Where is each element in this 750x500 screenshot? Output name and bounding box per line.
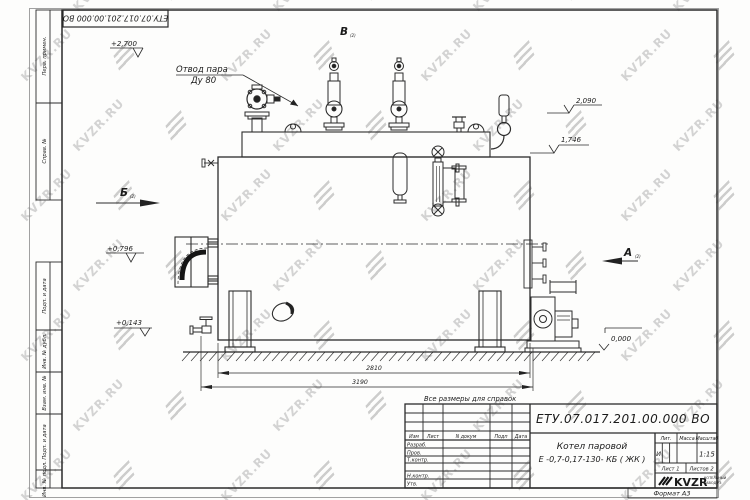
elevation-1746-text: 1,746 <box>561 136 582 144</box>
elevation-0143: +0,143 <box>114 319 152 336</box>
callout-line2: Ду 80 <box>190 76 216 86</box>
manhole <box>269 300 296 325</box>
view-a-sub: (2) <box>635 254 641 259</box>
dim-3190-text: 3190 <box>352 379 368 386</box>
product-name: Котел паровой <box>557 442 628 452</box>
view-b-sub: (2) <box>130 194 136 199</box>
boiler-drawing-svg: Перв. примен. Справ. № Подп. и дата Инв.… <box>0 0 750 500</box>
side-label-vzam-inv: Взам. инв. № <box>42 375 48 410</box>
mass-label: Масса <box>679 436 694 442</box>
product-model: Е -0,7-0,17-130- КБ ( ЖК ) <box>539 455 646 464</box>
row-tkontr: Т.контр. <box>407 458 429 464</box>
col-list: Лист <box>426 434 439 440</box>
dimension-2810: 2810 <box>218 343 530 378</box>
tee-valve <box>452 117 466 132</box>
view-a-letter: А <box>623 247 632 259</box>
row-razrab: Разраб. <box>407 443 427 449</box>
sheet-number: Лист 1 <box>660 467 679 473</box>
level-tube <box>393 153 407 203</box>
elevation-2700-text: +2,700 <box>111 40 137 48</box>
ground-line <box>182 352 600 361</box>
row-prov: Пров. <box>407 451 422 457</box>
view-b-letter: Б <box>120 187 128 199</box>
steam-outlet-valve <box>245 85 280 132</box>
view-label-a: А (2) <box>602 247 641 265</box>
elevation-2090: 2,090 <box>547 97 602 113</box>
shell-stub-valve <box>202 159 218 167</box>
side-label-podp-data-2: Подп. и дата <box>42 424 48 459</box>
scale-value: 1:15 <box>699 451 715 459</box>
support-leg-left <box>225 291 255 352</box>
top-stamp: ЕТУ.07.017.201.00.000 ВО <box>63 10 168 27</box>
support-leg-right <box>475 291 505 352</box>
view-label-v: В (2) <box>340 26 356 38</box>
view-v-letter: В <box>340 26 348 38</box>
col-podp: Подп <box>495 434 508 440</box>
drain-valve <box>190 317 212 334</box>
format-label: Формат А3 <box>653 490 690 498</box>
title-doc-number: ЕТУ.07.017.201.00.000 ВО <box>536 412 710 426</box>
col-izm: Изм <box>409 434 419 440</box>
blower-unit <box>525 280 581 352</box>
format-box: Формат А3 <box>628 488 717 498</box>
rear-wall-fittings <box>524 240 546 288</box>
col-data: Дата <box>514 434 527 440</box>
logo-text: KVZR <box>674 476 708 489</box>
side-label-inv-dubl: Инв. № дубл. <box>42 333 48 369</box>
lit-label: Лит. <box>659 436 671 442</box>
scale-label: Масштаб <box>696 436 719 442</box>
sheets-total: Листов 2 <box>688 467 713 473</box>
safety-valve-1 <box>324 58 344 130</box>
title-block-texts: ЕТУ.07.017.201.00.000 ВО Котел паровой Е… <box>407 412 718 488</box>
elevation-1746: 1,746 <box>530 136 589 153</box>
row-utv: Утв. <box>407 482 418 488</box>
reference-note: Все размеры для справок <box>424 395 517 403</box>
side-label-inv-podl: Инв. № подл. <box>42 461 48 497</box>
elevation-0000: 0,000 <box>599 328 642 350</box>
lit-value: И <box>656 450 661 458</box>
safety-valve-2 <box>389 58 409 130</box>
burner-box <box>175 237 218 287</box>
elevation-0000-text: 0,000 <box>611 335 632 343</box>
row-nkontr: Н.контр. <box>407 474 429 480</box>
side-label-perv-primen: Перв. примен. <box>42 37 48 76</box>
elevation-2090-text: 2,090 <box>576 97 597 105</box>
drawing-sheet: KVZR.RUKVZR.RUKVZR.RUKVZR.RUKVZR.RUKVZR.… <box>0 0 750 500</box>
logo-sub-line2: ЗАВОД РЗ <box>704 481 721 485</box>
col-ndokum: N докум <box>456 434 477 440</box>
view-v-sub: (2) <box>350 33 356 38</box>
logo-sub-line1: КОТЕЛЬНЫЙ <box>704 475 727 480</box>
elevation-0796-text: +0,796 <box>107 245 133 253</box>
frame-side-labels: Перв. примен. Справ. № Подп. и дата Инв.… <box>42 37 48 497</box>
view-label-b: Б (2) <box>96 187 160 207</box>
elevation-0143-text: +0,143 <box>116 319 142 327</box>
top-stamp-doc-number: ЕТУ.07.017.201.00.000 ВО <box>63 14 168 23</box>
callout-line1: Отвод пара <box>176 65 228 75</box>
frame-side-columns <box>36 10 62 488</box>
side-label-sprav-no: Справ. № <box>42 138 48 163</box>
pressure-gauge-siphon <box>491 95 511 149</box>
elevation-0796: +0,796 <box>106 245 144 262</box>
dim-2810-text: 2810 <box>366 365 382 372</box>
side-label-podp-data-1: Подп. и дата <box>42 278 48 313</box>
elevation-2700: +2,700 <box>110 40 143 57</box>
